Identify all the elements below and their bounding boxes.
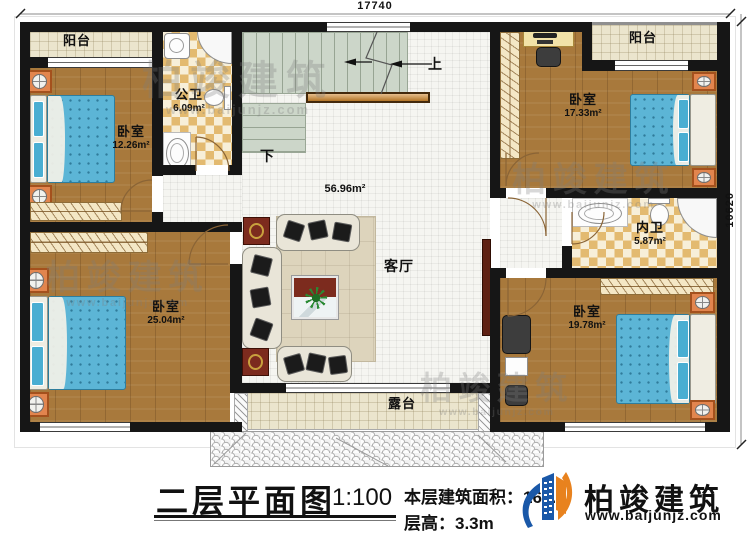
nightstand [692,72,716,91]
sofa-bottom [277,346,352,382]
chair-bedroom-c [505,385,528,406]
room-label-bedroom-b: 卧室 17.33m² [538,93,628,119]
sofa-cushion [328,355,348,375]
window [327,22,410,32]
room-name: 卧室 [542,305,632,320]
washing-machine [164,33,190,59]
sofa-cushion [332,222,353,243]
room-label-bedroom-a: 卧室 12.26m² [86,125,176,151]
bed-c-pillow [677,362,689,400]
side-table [242,348,269,376]
dimension-top-value: 17740 [357,0,393,12]
hall-passage-floor [163,175,242,222]
stair-up-label: 上 [428,54,442,74]
nightstand [690,292,715,313]
sofa-cushion [249,317,273,341]
dimension-right: 10620 [724,192,736,228]
sliding-door [286,383,450,393]
wall-segment [228,165,242,175]
wall-segment [490,268,500,422]
living-area-value: 56.96m² [305,183,385,195]
sofa-cushion [283,220,306,243]
wall-segment [20,22,327,32]
coffee-table [292,276,338,319]
wardrobe-bedroom-b [500,32,520,159]
desk-chair-bedroom-b [536,47,561,67]
wall-segment [450,383,492,393]
room-area: 25.04m² [121,315,211,327]
bed-d-pillow [31,302,44,342]
bed-a-pillow [33,101,44,137]
nightstand [690,400,715,420]
wall-segment [490,188,506,198]
wall-segment [20,422,40,432]
title-underline-thin [154,520,396,521]
wall-segment [230,264,242,383]
nightstand-knob [28,272,44,289]
wall-segment [490,22,500,188]
plan-scale-text: 1:100 [332,484,392,511]
room-label-living: 客厅 [369,258,429,274]
bed-b-pillow [678,132,689,162]
bed-b-headboard [690,94,716,166]
dimension-right-value: 10620 [724,192,736,228]
room-label-bedroom-c: 卧室 19.78m² [542,305,632,331]
bed-d-sheet [49,297,67,389]
bed-c-headboard [690,314,716,404]
room-name: 露台 [388,396,416,411]
desk-keyboard [537,40,553,44]
wall-segment [152,212,163,222]
room-area: 6.09m² [154,103,224,115]
room-name: 内卫 [615,221,685,236]
roof-below-terrace [210,431,544,467]
tv-cabinet-bedroom-c [502,315,531,354]
nightstand-knob [28,396,44,413]
wall-segment [230,383,286,393]
room-area: 17.33m² [538,108,628,120]
stair-upper-flight [242,32,408,94]
wall-segment [490,422,565,432]
bed-d-pillow [31,346,44,386]
wall-segment [30,57,48,68]
wall-segment [688,60,717,71]
title-underline-thick [154,515,396,518]
room-area: 19.78m² [542,320,632,332]
room-name: 客厅 [384,258,414,274]
window [615,60,688,71]
bed-d-mattress [48,296,126,390]
sofa-left [242,247,282,349]
wall-segment [152,22,163,68]
wall-segment [546,268,720,278]
sink-basin [584,207,614,220]
wall-segment [546,188,720,198]
side-table-ornament [248,354,263,370]
wall-segment [130,422,242,432]
sofa-cushion [250,254,273,277]
brand-logo-icon [516,468,578,530]
bed-b-pillow [678,99,689,129]
sofa-cushion [307,219,328,240]
bed-a-pillow [33,142,44,178]
window [40,422,130,432]
plan-scale: 1:100 [332,484,392,512]
floor-height-text: 层高：3.3m [404,514,494,533]
floor-height-line: 层高：3.3m [404,509,494,534]
room-name: 公卫 [154,88,224,103]
room-label-balcony-right: 阳台 [613,31,673,46]
nightstand [27,70,52,93]
corridor-floor [500,198,562,268]
side-table-ornament [249,223,264,239]
room-label-public-bath: 公卫 6.09m² [154,88,224,114]
stair-down-text: 下 [260,148,274,164]
bed-c-pillow [677,320,689,358]
nightstand-knob [32,74,47,89]
nightstand-knob [697,172,711,183]
stair-up-text: 上 [428,56,442,72]
side-table-bedroom-c [505,357,528,376]
floor-area-label: 本层建筑面积： [404,488,523,507]
nightstand-knob [695,404,710,416]
brand-website: www.baijunjz.com [585,507,722,523]
room-label-ensuite-bath: 内卫 5.87m² [615,221,685,247]
room-name: 阳台 [629,30,657,45]
brand-website-text: www.baijunjz.com [585,507,722,523]
room-name: 卧室 [538,93,628,108]
bed-a-sheet [48,96,65,182]
toilet-tank [224,86,231,110]
balcony-railing [585,22,717,25]
side-table [243,217,270,245]
wardrobe-bedroom-d [30,232,148,253]
wall-segment [232,22,242,175]
room-name: 卧室 [121,300,211,315]
wall-segment [582,60,615,71]
wardrobe-bedroom-a [30,202,122,221]
stair-lower-flight [242,103,306,153]
sofa-cushion [283,353,305,375]
stair-handrail [306,92,430,103]
terrace-floor [242,393,492,429]
sofa-cushion [249,286,271,308]
wall-segment [705,422,730,432]
window [565,422,705,432]
plant [305,287,327,309]
room-label-terrace: 露台 [372,397,432,412]
sofa-top [276,214,360,251]
wall-segment [20,222,242,232]
room-area: 56.96m² [325,183,366,195]
desk-monitor [533,33,557,38]
room-area: 5.87m² [615,236,685,248]
room-area: 12.26m² [86,140,176,152]
wall-segment [152,68,163,176]
floor-plan: 阳台 公卫 6.09m² 卧室 12.26m² 卧室 17.33m² 阳台 内卫… [0,0,750,541]
wall-segment [152,165,196,175]
room-label-balcony-left: 阳台 [47,34,107,49]
washing-machine-drum [169,38,184,53]
plan-title-text: 二层平面图 [156,483,336,519]
nightstand [692,168,716,187]
dimension-top: 17740 [340,0,410,12]
room-name: 卧室 [86,125,176,140]
window [48,57,152,68]
room-name: 阳台 [63,33,91,48]
stair-down-label: 下 [260,146,274,166]
nightstand-knob [695,296,710,309]
nightstand-knob [697,76,711,87]
room-label-bedroom-d: 卧室 25.04m² [121,300,211,326]
sofa-cushion [305,352,326,373]
